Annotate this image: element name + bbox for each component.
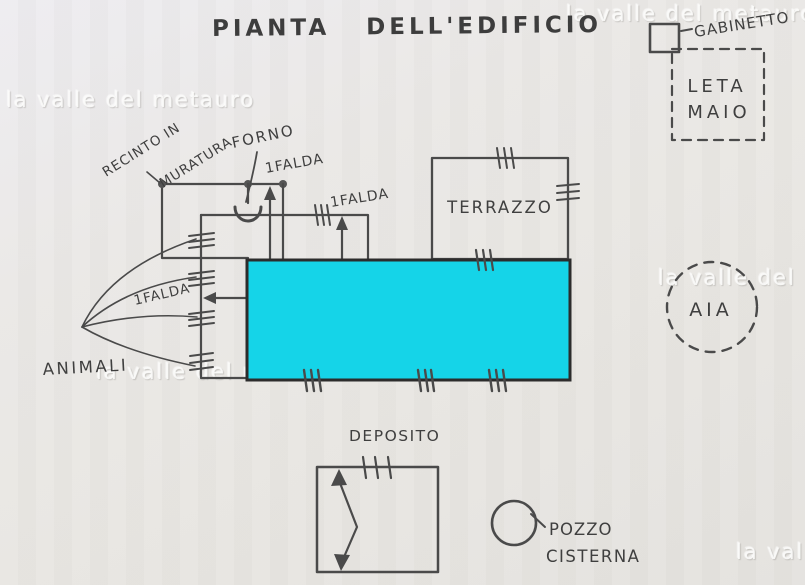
letamaio-label-line1: LETA (687, 76, 746, 97)
well-circle (492, 501, 536, 545)
well-pointer-tick (531, 514, 545, 527)
forno-label: FORNO (230, 121, 296, 152)
falda-arrowhead-up (264, 186, 276, 200)
pozzo-cisterna: POZZO CISTERNA (492, 501, 640, 566)
pozzo-label-line1: POZZO (549, 520, 613, 539)
scanned-plan-page: la valle del metauro la valle del metaur… (0, 0, 805, 585)
animali-label: ANIMALI (42, 356, 128, 379)
terrazzo-room: TERRAZZO (432, 148, 579, 259)
falda-arrowhead-left (203, 292, 216, 304)
stairs-arrow-shaft (340, 483, 357, 557)
aia-label: AIA (689, 299, 733, 321)
gabinetto-symbol (650, 24, 679, 52)
forno-pointer-line (246, 152, 257, 202)
terrazzo-label: TERRAZZO (446, 198, 553, 217)
stairs-arrowhead-down (334, 554, 350, 571)
main-building (247, 250, 570, 391)
deposito-label: DEPOSITO (349, 427, 440, 445)
letamaio-label-line2: MAIO (687, 102, 750, 123)
plan-drawing: GABINETTO LETA MAIO RECINTO IN MURATURA (0, 0, 805, 585)
aia-area: AIA (667, 262, 757, 352)
building-footprint (247, 260, 570, 380)
pen-top-door-hatch (315, 205, 330, 225)
falda-top-label: 1FALDA (264, 151, 325, 177)
legend-dash (681, 29, 692, 31)
callout-line (82, 316, 197, 327)
pen-door-hatch (189, 311, 214, 326)
legend-gabinetto: GABINETTO (650, 8, 791, 52)
gabinetto-label: GABINETTO (693, 8, 791, 41)
pen-door-hatch (189, 271, 214, 286)
legend-letamaio: LETA MAIO (672, 49, 764, 140)
deposito-room: DEPOSITO (317, 427, 440, 572)
falda-mid-label: 1FALDA (329, 186, 390, 211)
pozzo-label-line2: CISTERNA (546, 547, 640, 566)
falda-arrowhead-up (336, 216, 348, 230)
animali-callout: ANIMALI (42, 239, 197, 379)
